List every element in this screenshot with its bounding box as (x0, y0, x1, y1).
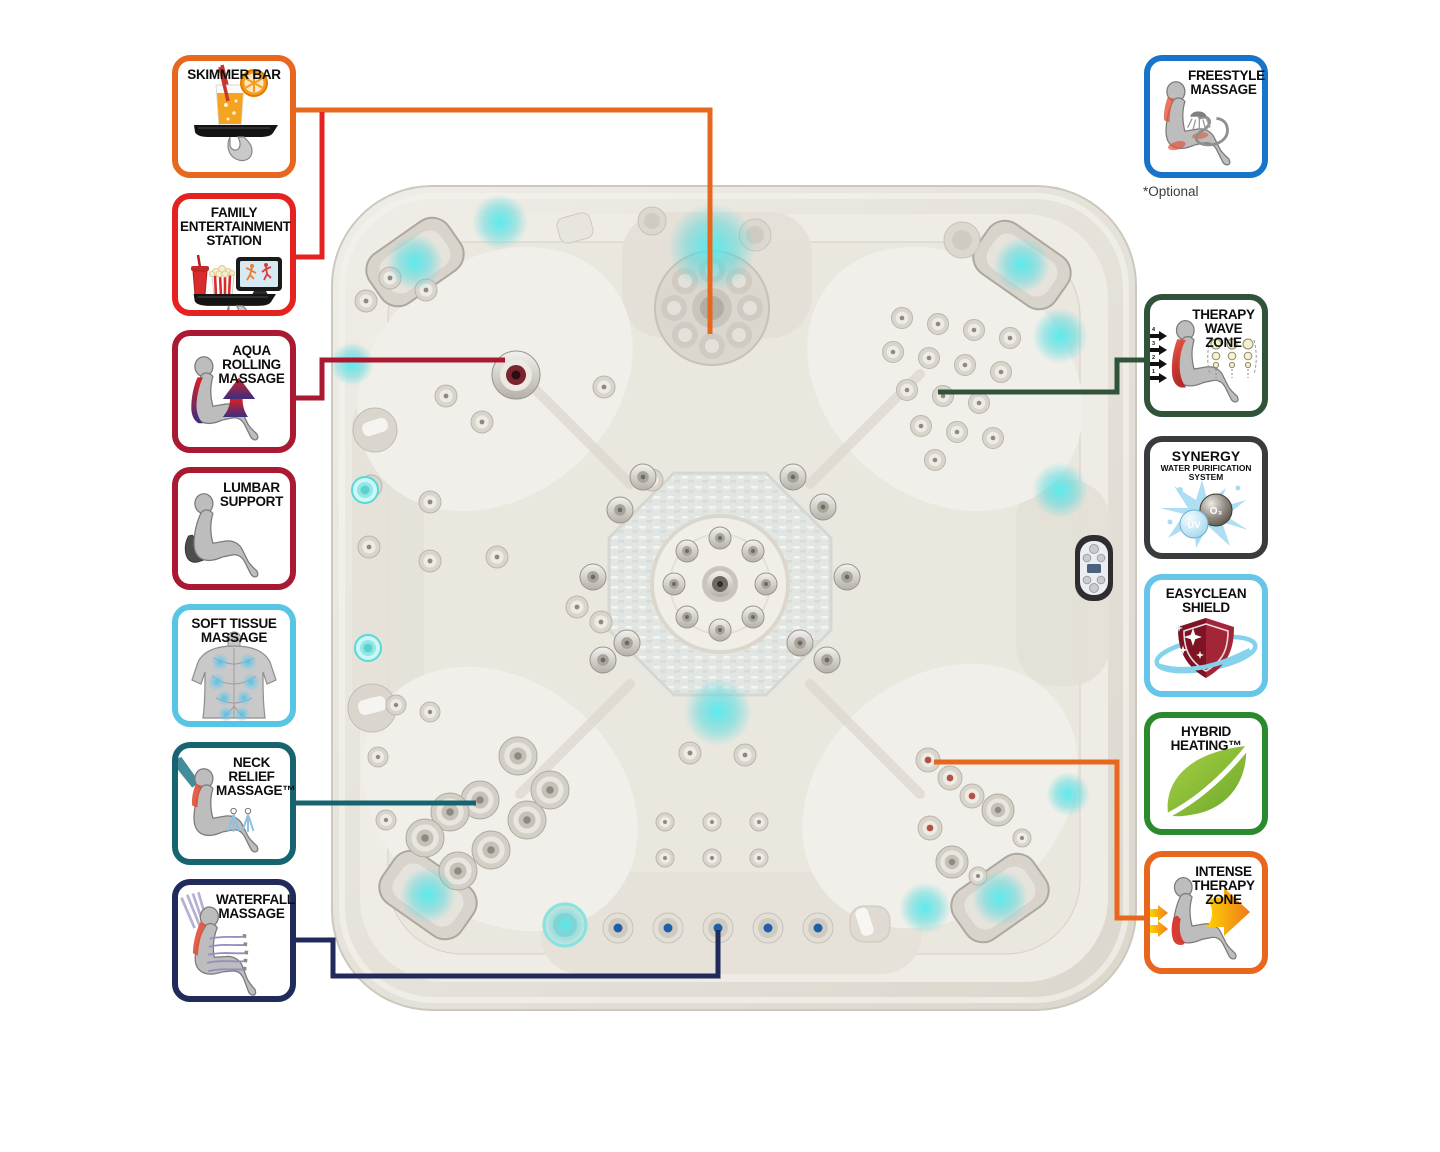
soft-tissue-massage-label: SOFT TISSUE MASSAGE (178, 617, 290, 645)
callout-therapy-wave-zone: 4 3 2 1 THERAPY WAVE ZONE (1144, 294, 1268, 417)
spiral-jet (982, 794, 1014, 826)
callout-lumbar-support: LUMBAR SUPPORT (172, 467, 296, 590)
jet (566, 596, 588, 618)
steel-jet (834, 564, 860, 590)
led-ring-light (352, 477, 378, 503)
jet (703, 813, 721, 831)
jet (933, 386, 954, 407)
jet (590, 611, 612, 633)
jet (1013, 829, 1031, 847)
led-glow (668, 203, 756, 291)
jet (376, 810, 396, 830)
jet (734, 744, 756, 766)
hot-tub-feature-diagram: SKIMMER BAR (0, 0, 1440, 1152)
callout-family-entertainment-station: FAMILY ENTERTAINMENT STATION (172, 193, 296, 316)
jet (919, 348, 940, 369)
jet (358, 536, 380, 558)
jet (960, 784, 984, 808)
steel-jet (755, 573, 777, 595)
steel-jet (780, 464, 806, 490)
jet (435, 385, 457, 407)
aqua-rolling-jet (492, 351, 540, 399)
spiral-jet (499, 737, 537, 775)
lumbar-support-label: LUMBAR SUPPORT (216, 481, 287, 509)
jet (420, 702, 440, 722)
led-glow (472, 194, 528, 250)
jet (964, 320, 985, 341)
callout-skimmer-bar: SKIMMER BAR (172, 55, 296, 178)
synergy-sublabel: WATER PURIFICATION SYSTEM (1156, 464, 1256, 482)
callout-hybrid-heating: HYBRID HEATING™ (1144, 712, 1268, 835)
jet (911, 416, 932, 437)
waterfall-jet (653, 913, 683, 943)
jet (918, 816, 942, 840)
control-panel (1075, 535, 1113, 601)
jet (892, 308, 913, 329)
jet (750, 813, 768, 831)
aqua-rolling-massage-label: AQUA ROLLING MASSAGE (216, 344, 287, 387)
steel-jet (580, 564, 606, 590)
skimmer-bar-label: SKIMMER BAR (178, 68, 290, 82)
jet (1000, 328, 1021, 349)
led-ring-light (355, 635, 381, 661)
jet (703, 849, 721, 867)
jet (656, 849, 674, 867)
jet (750, 849, 768, 867)
hybrid-heating-label: HYBRID HEATING™ (1150, 725, 1262, 753)
jet (897, 380, 918, 401)
steel-jet (663, 573, 685, 595)
led-glow (400, 867, 456, 923)
steel-jet (709, 527, 731, 549)
ozone-label: O₃ (1210, 506, 1223, 517)
jet (928, 314, 949, 335)
jet (938, 766, 962, 790)
jet (656, 813, 674, 831)
intense-therapy-zone-label: INTENSE THERAPY ZONE (1188, 865, 1259, 908)
jet (419, 491, 441, 513)
steel-jet (676, 540, 698, 562)
jet (916, 748, 940, 772)
wave-arrow-number: 2 (1152, 355, 1155, 361)
waterfall-jet (603, 913, 633, 943)
steel-jet (607, 497, 633, 523)
easyclean-shield-label: EASYCLEAN SHIELD (1150, 587, 1262, 615)
callout-waterfall-massage: WATERFALL MASSAGE (172, 879, 296, 1002)
jet (883, 342, 904, 363)
steel-jet (614, 630, 640, 656)
led-glow (387, 234, 443, 290)
waterfall-jet (803, 913, 833, 943)
callout-soft-tissue-massage: SOFT TISSUE MASSAGE (172, 604, 296, 727)
callout-easyclean-shield: EASYCLEAN SHIELD (1144, 574, 1268, 697)
jet (593, 376, 615, 398)
steel-jet (709, 619, 731, 641)
led-glow (1032, 462, 1088, 518)
jet (969, 393, 990, 414)
center-drain-jet (717, 581, 723, 587)
jet (471, 411, 493, 433)
led-glow (541, 901, 589, 949)
led-glow (1046, 772, 1090, 816)
jet (355, 290, 377, 312)
steel-jet (676, 606, 698, 628)
led-glow (684, 678, 752, 746)
jet (955, 355, 976, 376)
steel-jet (810, 494, 836, 520)
steel-jet (742, 540, 764, 562)
wave-arrow-number: 3 (1152, 341, 1155, 347)
steel-jet (814, 647, 840, 673)
family-entertainment-station-label: FAMILY ENTERTAINMENT STATION (178, 206, 290, 249)
wave-arrow-number: 1 (1152, 369, 1155, 375)
spiral-jet (936, 846, 968, 878)
waterfall-massage-label: WATERFALL MASSAGE (216, 893, 287, 921)
jet (679, 742, 701, 764)
led-glow (1032, 308, 1088, 364)
synergy-label: SYNERGY (1150, 448, 1262, 464)
waterfall-jet (753, 913, 783, 943)
spiral-jet (508, 801, 546, 839)
led-glow (972, 870, 1028, 926)
family-entertainment-connector-line (294, 112, 322, 257)
callout-intense-therapy-zone: INTENSE THERAPY ZONE (1144, 851, 1268, 974)
jet (368, 747, 388, 767)
led-glow (899, 882, 951, 934)
waterfall-jet (703, 913, 733, 943)
therapy-wave-zone-label: THERAPY WAVE ZONE (1188, 308, 1259, 351)
led-glow (330, 342, 374, 386)
callout-synergy-water-purification: O₃ UV SYNERGY WATER PURIFICATION SYSTEM (1144, 436, 1268, 559)
callout-freestyle-massage: FREESTYLE MASSAGE (1144, 55, 1268, 178)
hot-tub-photo (330, 184, 1138, 1012)
spiral-jet (406, 819, 444, 857)
jet (983, 428, 1004, 449)
steel-jet (630, 464, 656, 490)
freestyle-massage-label: FREESTYLE MASSAGE (1188, 69, 1259, 97)
optional-note: *Optional (1143, 184, 1199, 199)
wave-arrow-number: 4 (1152, 327, 1156, 333)
jet (947, 422, 968, 443)
jet (419, 550, 441, 572)
jet (925, 450, 946, 471)
led-glow (994, 237, 1050, 293)
jet (991, 362, 1012, 383)
steel-jet (742, 606, 764, 628)
callout-aqua-rolling-massage: AQUA ROLLING MASSAGE (172, 330, 296, 453)
steel-jet (787, 630, 813, 656)
uv-label: UV (1187, 520, 1201, 531)
callout-neck-relief-massage: NECK RELIEF MASSAGE™ (172, 742, 296, 865)
steel-jet (590, 647, 616, 673)
neck-relief-massage-label: NECK RELIEF MASSAGE™ (216, 756, 287, 799)
jet (486, 546, 508, 568)
jet (386, 695, 406, 715)
spiral-jet (472, 831, 510, 869)
